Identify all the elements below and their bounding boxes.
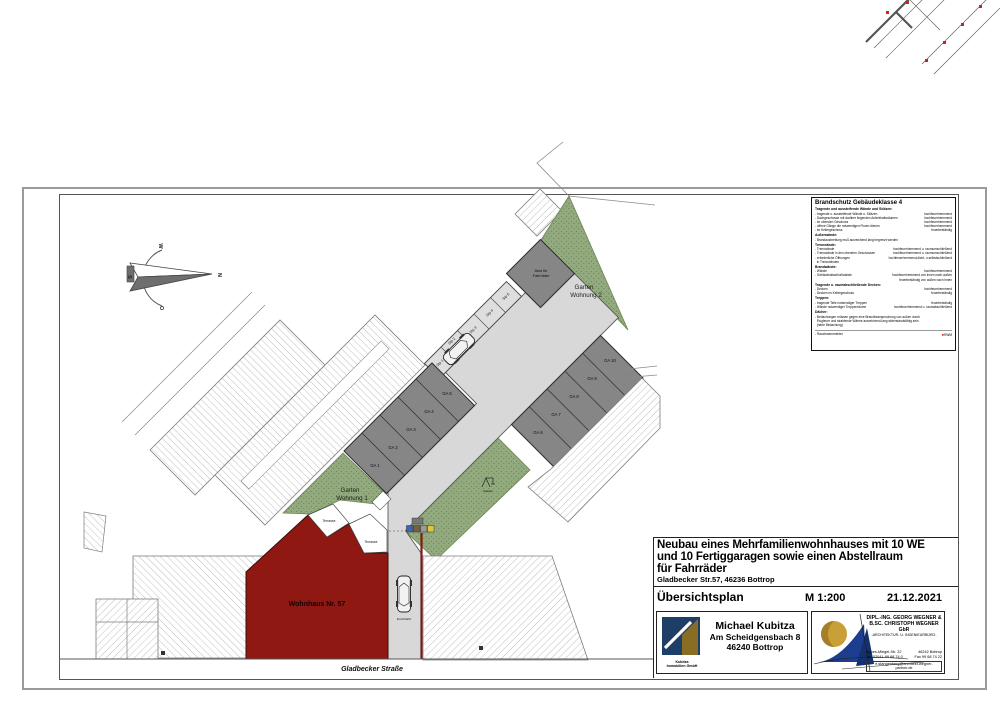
client-info: Michael Kubitza Am Scheidgensbach 8 4624… bbox=[705, 620, 805, 652]
fire-item-row: feuerbeständig von außen nach innen bbox=[815, 278, 952, 282]
terrace-label: Terrasse bbox=[322, 519, 335, 523]
plan-date: 21.12.2021 bbox=[858, 592, 942, 604]
titleblock-divider bbox=[653, 537, 958, 538]
garage-label: GA 2 bbox=[388, 445, 398, 450]
client-box: Kubitza Immobilien GmbH Michael Kubitza … bbox=[656, 611, 808, 674]
client-name: Michael Kubitza bbox=[705, 620, 805, 632]
kubitza-logo bbox=[662, 617, 702, 659]
project-title: Neubau eines Mehrfamilienwohnhauses mit … bbox=[657, 540, 955, 575]
titleblock-divider bbox=[653, 537, 654, 678]
garage-label: GA 4 bbox=[424, 409, 434, 414]
north-arrow: N W S O bbox=[126, 243, 222, 310]
wohnhaus-label: Wohnhaus Nr. 57 bbox=[289, 601, 346, 608]
bike-storage-label: Fahrräder bbox=[533, 274, 550, 278]
garden1-label: Garten bbox=[341, 487, 360, 494]
garden2-label: Garten bbox=[575, 284, 594, 291]
fire-box-title: Brandschutz Gebäudeklasse 4 bbox=[815, 200, 952, 206]
garage-label: GA 3 bbox=[406, 427, 416, 432]
fire-footer-label: - Rauchwarnmelder bbox=[815, 332, 843, 337]
architect-names: DIPL.-ING. GEORG WEGNER & B.SC. CHRISTOP… bbox=[866, 615, 942, 638]
compass-n: N bbox=[216, 273, 222, 277]
garage-label: GA 5 bbox=[442, 391, 452, 396]
client-logo-caption: Kubitza Immobilien GmbH bbox=[659, 660, 705, 669]
smoke-detector-note: ●RWM bbox=[942, 332, 952, 337]
fire-item-row: (harte Bedachung) bbox=[815, 323, 952, 327]
titleblock-divider bbox=[653, 586, 958, 587]
durchfahrt-label: Durchfahrt bbox=[397, 617, 412, 621]
garage-label: GA 7 bbox=[551, 412, 561, 417]
fire-protection-box: Brandschutz Gebäudeklasse 4 Tragende und… bbox=[811, 197, 956, 351]
fire-item-row: in Trennwänden bbox=[815, 260, 952, 264]
garage-label: GA 8 bbox=[569, 394, 579, 399]
corner-inset-drawing bbox=[856, 0, 1000, 80]
client-street: Am Scheidgensbach 8 bbox=[705, 632, 805, 642]
fire-item-row: - Brandausbreitung muß ausreichend lang … bbox=[815, 238, 952, 242]
terrace-label: Terrasse bbox=[364, 540, 377, 544]
street-label: Gladbecker Straße bbox=[341, 666, 403, 673]
compass-s: S bbox=[126, 275, 132, 279]
street-marker bbox=[479, 646, 483, 650]
architect-address: Agnes-Miegel-Str. 2246242 Bottrop Tel. 0… bbox=[866, 650, 942, 672]
fire-item-row: - Decken im Kellergeschossfeuerbeständig bbox=[815, 291, 952, 295]
plan-name: Übersichtsplan bbox=[657, 590, 744, 604]
driveway-car bbox=[396, 576, 412, 612]
plot-boundary-line bbox=[537, 142, 655, 205]
fire-item-row: - im Kellergeschossfeuerbeständig bbox=[815, 228, 952, 232]
garage-label: GA 1 bbox=[370, 463, 380, 468]
street-marker bbox=[161, 651, 165, 655]
existing-building-southeast bbox=[423, 556, 588, 660]
compass-w: W bbox=[157, 243, 163, 249]
architect-email: e.stangenberg@architekt-wegner-partner.d… bbox=[866, 661, 942, 672]
plan-scale: M 1:200 bbox=[805, 592, 845, 604]
garden1-label: Wohnung 1 bbox=[336, 495, 368, 502]
fire-box-body: Tragende und aussteifende Wände und Stüt… bbox=[815, 207, 952, 327]
garage-label: GA 10 bbox=[604, 358, 616, 363]
fire-item-row: - Wände notwendiger Treppenräumehochfeue… bbox=[815, 305, 952, 309]
garden2-label: Wohnung 2 bbox=[570, 292, 602, 299]
architect-box: DIPL.-ING. GEORG WEGNER & B.SC. CHRISTOP… bbox=[811, 611, 945, 674]
garage-label: GA 9 bbox=[587, 376, 597, 381]
play-area-label: Spielen bbox=[483, 489, 493, 493]
project-address: Gladbecker Str.57, 46236 Bottrop bbox=[657, 575, 775, 584]
client-city: 46240 Bottrop bbox=[705, 642, 805, 652]
garage-label: GA 6 bbox=[533, 430, 543, 435]
fire-box-footer: - Rauchwarnmelder ●RWM bbox=[815, 330, 952, 337]
bike-storage-label: Abst für bbox=[534, 269, 548, 273]
compass-o: O bbox=[158, 306, 164, 311]
